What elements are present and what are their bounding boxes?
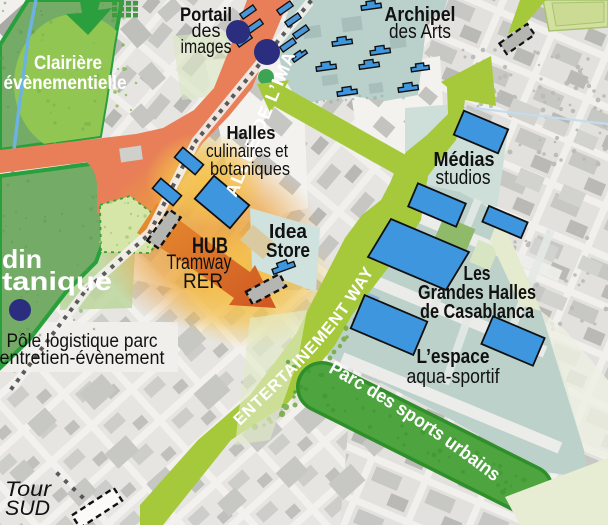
svg-text:RER: RER: [183, 270, 223, 293]
svg-text:images: images: [181, 37, 232, 58]
svg-text:Clairière: Clairière: [34, 53, 102, 74]
svg-text:tanique: tanique: [2, 266, 112, 296]
svg-text:entretien-évènement: entretien-évènement: [0, 348, 165, 369]
svg-text:aqua-sportif: aqua-sportif: [407, 366, 500, 388]
svg-text:botaniques: botaniques: [210, 159, 290, 179]
svg-text:SUD: SUD: [5, 497, 50, 520]
svg-text:Halles: Halles: [227, 123, 276, 143]
svg-text:Store: Store: [266, 240, 310, 262]
svg-text:studios: studios: [436, 167, 491, 189]
svg-text:L’espace: L’espace: [417, 346, 490, 368]
svg-text:évènementielle: évènementielle: [4, 73, 127, 94]
svg-text:culinaires et: culinaires et: [206, 141, 288, 161]
svg-text:de Casablanca: de Casablanca: [420, 301, 535, 323]
svg-text:des Arts: des Arts: [389, 21, 451, 43]
